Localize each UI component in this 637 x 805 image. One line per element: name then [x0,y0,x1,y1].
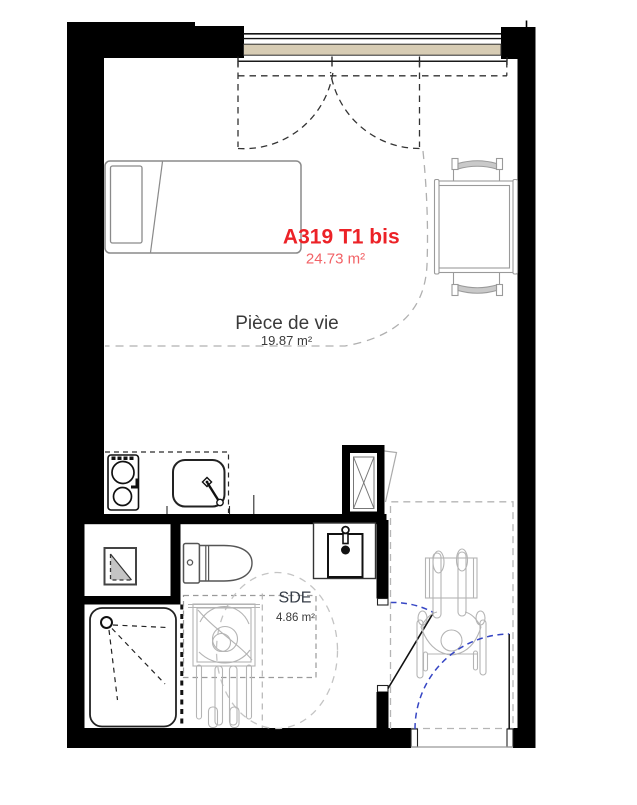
svg-text:24.73 m²: 24.73 m² [306,251,365,268]
svg-text:Pièce de vie: Pièce de vie [235,313,339,334]
svg-text:19.87 m²: 19.87 m² [261,333,313,348]
svg-text:A319 T1 bis: A319 T1 bis [283,226,400,249]
svg-text:4.86 m²: 4.86 m² [276,612,315,624]
svg-text:SDE: SDE [279,590,312,607]
